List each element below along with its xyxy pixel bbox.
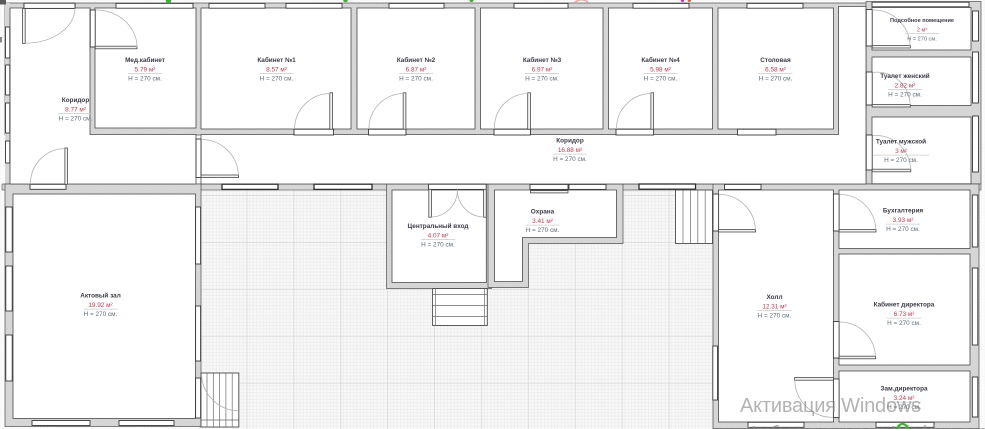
svg-text:Актовый зал: Актовый зал <box>80 291 121 299</box>
svg-text:Н = 270 см.: Н = 270 см. <box>884 157 918 164</box>
svg-text:Чтобы активировать Windows, пе: Чтобы активировать Windows, перейдите в … <box>746 423 985 429</box>
svg-text:Кабинет №3: Кабинет №3 <box>523 56 562 64</box>
svg-text:Н = 270 см.: Н = 270 см. <box>128 76 162 83</box>
svg-text:Н = 270 см.: Н = 270 см. <box>59 116 93 123</box>
svg-text:Кабинет №2: Кабинет №2 <box>397 56 436 64</box>
svg-text:Н = 270 см.: Н = 270 см. <box>886 226 920 233</box>
svg-text:Холл: Холл <box>766 294 782 301</box>
svg-text:2.82 м²: 2.82 м² <box>895 82 916 89</box>
svg-text:6.58 м²: 6.58 м² <box>765 66 786 73</box>
svg-text:Н = 270 см.: Н = 270 см. <box>907 37 937 43</box>
svg-text:5.98 м²: 5.98 м² <box>650 66 671 73</box>
svg-text:8.57 м²: 8.57 м² <box>266 66 287 73</box>
svg-text:6.97 м²: 6.97 м² <box>532 66 553 73</box>
svg-text:Н = 270 см.: Н = 270 см. <box>758 313 792 320</box>
svg-text:6.87 м²: 6.87 м² <box>406 66 427 73</box>
svg-text:Н = 270 см.: Н = 270 см. <box>759 76 793 83</box>
svg-text:Н = 270 см.: Н = 270 см. <box>399 76 433 83</box>
svg-text:3.93 м²: 3.93 м² <box>893 217 914 224</box>
svg-text:Н = 270 см.: Н = 270 см. <box>888 92 922 99</box>
svg-text:3 м²: 3 м² <box>895 148 907 155</box>
svg-text:Коридор: Коридор <box>556 137 584 144</box>
svg-text:Н = 270 см.: Н = 270 см. <box>260 76 294 83</box>
svg-text:Н = 270 см.: Н = 270 см. <box>421 242 455 249</box>
svg-text:16.88 м²: 16.88 м² <box>558 147 582 154</box>
svg-text:3.41 м²: 3.41 м² <box>532 218 553 225</box>
svg-text:Мед.кабинет: Мед.кабинет <box>125 56 165 64</box>
svg-text:Н = 270 см.: Н = 270 см. <box>553 156 587 163</box>
svg-text:12.31 м²: 12.31 м² <box>762 303 786 310</box>
svg-text:Н = 270 см.: Н = 270 см. <box>887 320 921 327</box>
svg-text:Зам.директора: Зам.директора <box>880 385 928 392</box>
svg-text:5.79 м²: 5.79 м² <box>135 66 156 73</box>
svg-text:Туалет мужской: Туалет мужской <box>876 137 926 145</box>
svg-text:19.92 м²: 19.92 м² <box>88 302 112 309</box>
svg-text:Бухгалтерия: Бухгалтерия <box>883 207 923 214</box>
svg-text:Н = 270 см.: Н = 270 см. <box>525 76 559 83</box>
svg-text:Н = 270 см.: Н = 270 см. <box>526 227 560 234</box>
svg-text:Н = 270 см.: Н = 270 см. <box>84 311 118 318</box>
svg-text:Столовая: Столовая <box>760 57 791 64</box>
svg-text:6.73 м²: 6.73 м² <box>894 311 915 318</box>
svg-text:4.07 м²: 4.07 м² <box>428 232 449 239</box>
svg-text:Центральный вход: Центральный вход <box>408 222 469 230</box>
svg-text:Кабинет №1: Кабинет №1 <box>257 56 296 64</box>
svg-text:Кабинет №4: Кабинет №4 <box>641 56 680 64</box>
svg-text:Коридор: Коридор <box>62 97 90 104</box>
svg-text:Н = 270 см.: Н = 270 см. <box>644 76 678 83</box>
svg-text:8.77 м²: 8.77 м² <box>65 106 86 113</box>
svg-text:Кабинет директора: Кабинет директора <box>874 300 935 308</box>
svg-text:Туалет женский: Туалет женский <box>880 72 930 80</box>
svg-text:Подсобное помещение: Подсобное помещение <box>890 17 954 24</box>
svg-text:2 м²: 2 м² <box>917 27 928 33</box>
svg-text:Активация Windows: Активация Windows <box>740 395 921 417</box>
svg-text:Охрана: Охрана <box>531 208 555 215</box>
